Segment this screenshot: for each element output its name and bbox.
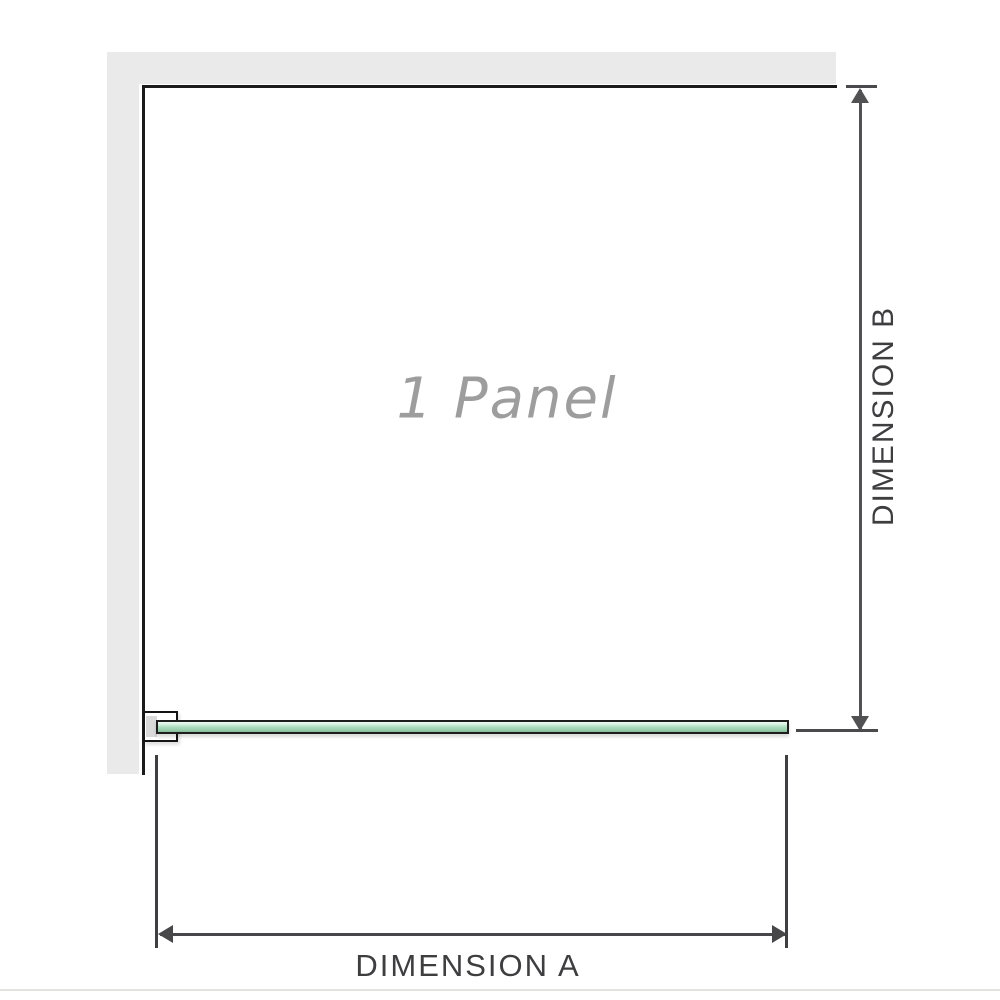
dimension-a-extension-left — [155, 755, 158, 948]
bottom-divider-line — [0, 989, 1000, 991]
arrowhead-up-icon — [851, 88, 869, 103]
wall-edge-top-line — [142, 85, 837, 88]
dimension-a-extension-right — [785, 755, 788, 948]
wall-top — [107, 52, 836, 84]
dimension-b-line — [859, 90, 862, 730]
dimension-a-line — [160, 933, 785, 936]
glass-panel — [156, 720, 789, 734]
dimension-a-label: DIMENSION A — [355, 948, 580, 984]
panel-count-watermark: 1 Panel — [396, 367, 617, 432]
arrowhead-right-icon — [772, 925, 787, 943]
dimension-b-tick-top — [846, 85, 877, 88]
dimension-b-label: DIMENSION B — [867, 306, 901, 526]
wall-left — [107, 52, 139, 774]
arrowhead-left-icon — [158, 925, 173, 943]
diagram-canvas: 1 Panel DIMENSION B DIMENSION A — [0, 0, 1000, 1000]
dimension-b-tick-bottom — [796, 729, 878, 732]
wall-edge-left-line — [142, 85, 145, 775]
